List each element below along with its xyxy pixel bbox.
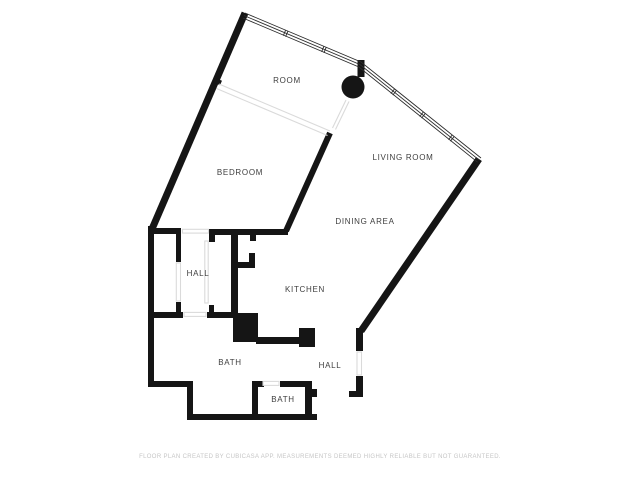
closet-door-opening (176, 263, 180, 301)
hall2-wall-foot (349, 391, 357, 397)
floor-plan: ROOM BEDROOM LIVING ROOM DINING AREA HAL… (0, 0, 640, 480)
room-label-kitchen: KITCHEN (285, 285, 325, 294)
bath2-wall-top-left (252, 381, 264, 387)
column (342, 76, 365, 99)
nook-bottom-tick (209, 305, 214, 314)
kitchen-left-wall (231, 229, 238, 315)
hall2-wall-right-upper (356, 328, 363, 351)
bath2-door-opening (263, 381, 279, 385)
room-label-hall-2: HALL (319, 361, 342, 370)
room-labels: ROOM BEDROOM LIVING ROOM DINING AREA HAL… (187, 76, 434, 404)
room-door-opening (333, 100, 347, 128)
kitchen-bottom-wall (256, 337, 302, 344)
bath2-wall-right (305, 381, 312, 420)
room-door-opening (336, 102, 350, 130)
exterior-step-horizontal (148, 381, 193, 387)
nook-top-tick (209, 234, 215, 242)
kitchen-pillar-block (299, 328, 315, 347)
room-bedroom-opening (217, 89, 328, 136)
bath2-wall-top-right (280, 381, 308, 387)
disclaimer-text: FLOOR PLAN CREATED BY CUBICASA APP. MEAS… (139, 454, 501, 460)
divider-tick (214, 80, 221, 83)
room-label-hall: HALL (187, 269, 210, 278)
bath2-notch (312, 389, 317, 397)
hall2-wall-right-lower (356, 376, 363, 397)
room-label-bedroom: BEDROOM (217, 168, 263, 177)
exterior-wall-top-left (152, 13, 245, 229)
room-label-dining-area: DINING AREA (335, 217, 394, 226)
closet-bottom-wall (148, 312, 183, 318)
bedroom-divider-wall (286, 133, 330, 231)
hall-left-wall (176, 228, 181, 262)
exterior-wall-left (148, 226, 154, 386)
room-label-room: ROOM (273, 76, 301, 85)
walls (148, 13, 479, 420)
floor-plan-page: ROOM BEDROOM LIVING ROOM DINING AREA HAL… (0, 0, 640, 480)
kitchen-top-tick (250, 234, 256, 241)
bedroom-door-opening (183, 229, 209, 233)
hall-bath-opening (184, 312, 206, 316)
room-label-bath: BATH (218, 358, 242, 367)
kitchen-hook-horizontal (238, 262, 255, 268)
room-bedroom-opening (219, 84, 330, 131)
room-label-living-room: LIVING ROOM (372, 153, 433, 162)
bedroom-bottom-wall (209, 229, 288, 235)
exterior-wall-right (361, 159, 479, 331)
room-label-bath-2: BATH (271, 395, 295, 404)
entry-door-opening (357, 352, 362, 375)
